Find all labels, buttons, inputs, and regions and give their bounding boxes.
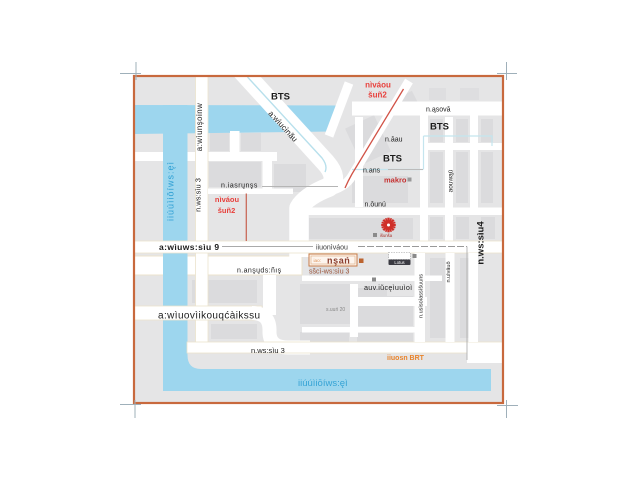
svg-text:šuñ2: šuñ2 [218,206,236,215]
svg-text:auv.iŭcęìuuìoì: auv.iŭcęìuuìoì [364,283,412,292]
svg-text:išunša: išunša [380,233,393,238]
svg-text:aouwąū: aouwąū [448,169,455,192]
svg-text:BTS: BTS [430,122,449,133]
svg-text:n.uìvāuō: n.uìvāuō [446,261,452,282]
svg-text:iiuonìváou: iiuonìváou [316,245,348,252]
svg-text:iao:: iao: [314,258,321,263]
svg-text:n.ws:sìu 3: n.ws:sìu 3 [251,346,285,355]
svg-text:BTS: BTS [383,154,402,165]
svg-text:nşań: nşań [327,256,350,266]
svg-text:n.anşųds:ñış: n.anşųds:ñış [237,268,282,275]
svg-text:a:wìuws:sìu 9: a:wìuws:sìu 9 [159,242,219,252]
svg-text:BTS: BTS [271,92,290,103]
svg-text:iiuosn BRT: iiuosn BRT [387,355,425,362]
svg-text:n.ws:sìu4: n.ws:sìu4 [476,221,487,265]
svg-text:makro: makro [384,176,407,185]
svg-text:n.iasrųnşs: n.iasrųnşs [221,183,258,190]
svg-text:šuñ2: šuñ2 [368,91,387,100]
svg-text:n.āau: n.āau [385,137,403,144]
svg-text:a:wìunşoinw: a:wìunşoinw [195,103,204,151]
svg-text:iiúúìiōíws:ęì: iiúúìiōíws:ęì [166,161,176,221]
svg-text:Lotus: Lotus [394,260,404,265]
svg-text:nìváou: nìváou [365,81,391,90]
svg-text:n.usìsoìassìšuuns: n.usìsoìassìšuuns [419,274,425,318]
svg-text:iiúúìiōíws:ęì: iiúúìiōíws:ęì [298,378,348,389]
svg-text:sšcì-ws:sìu 3: sšcì-ws:sìu 3 [309,269,350,276]
svg-text:a:wìuovìikouqćàikssu: a:wìuovìikouqćàikssu [158,311,261,322]
svg-text:n.ąsovā: n.ąsovā [426,107,451,114]
svg-text:n.ans: n.ans [363,168,381,175]
svg-text:n.ōunú: n.ōunú [365,202,387,209]
svg-text:s.uuń 20: s.uuń 20 [326,307,345,313]
svg-text:nìváou: nìváou [215,195,240,204]
svg-text:n.ws:sìu 3: n.ws:sìu 3 [194,178,203,212]
